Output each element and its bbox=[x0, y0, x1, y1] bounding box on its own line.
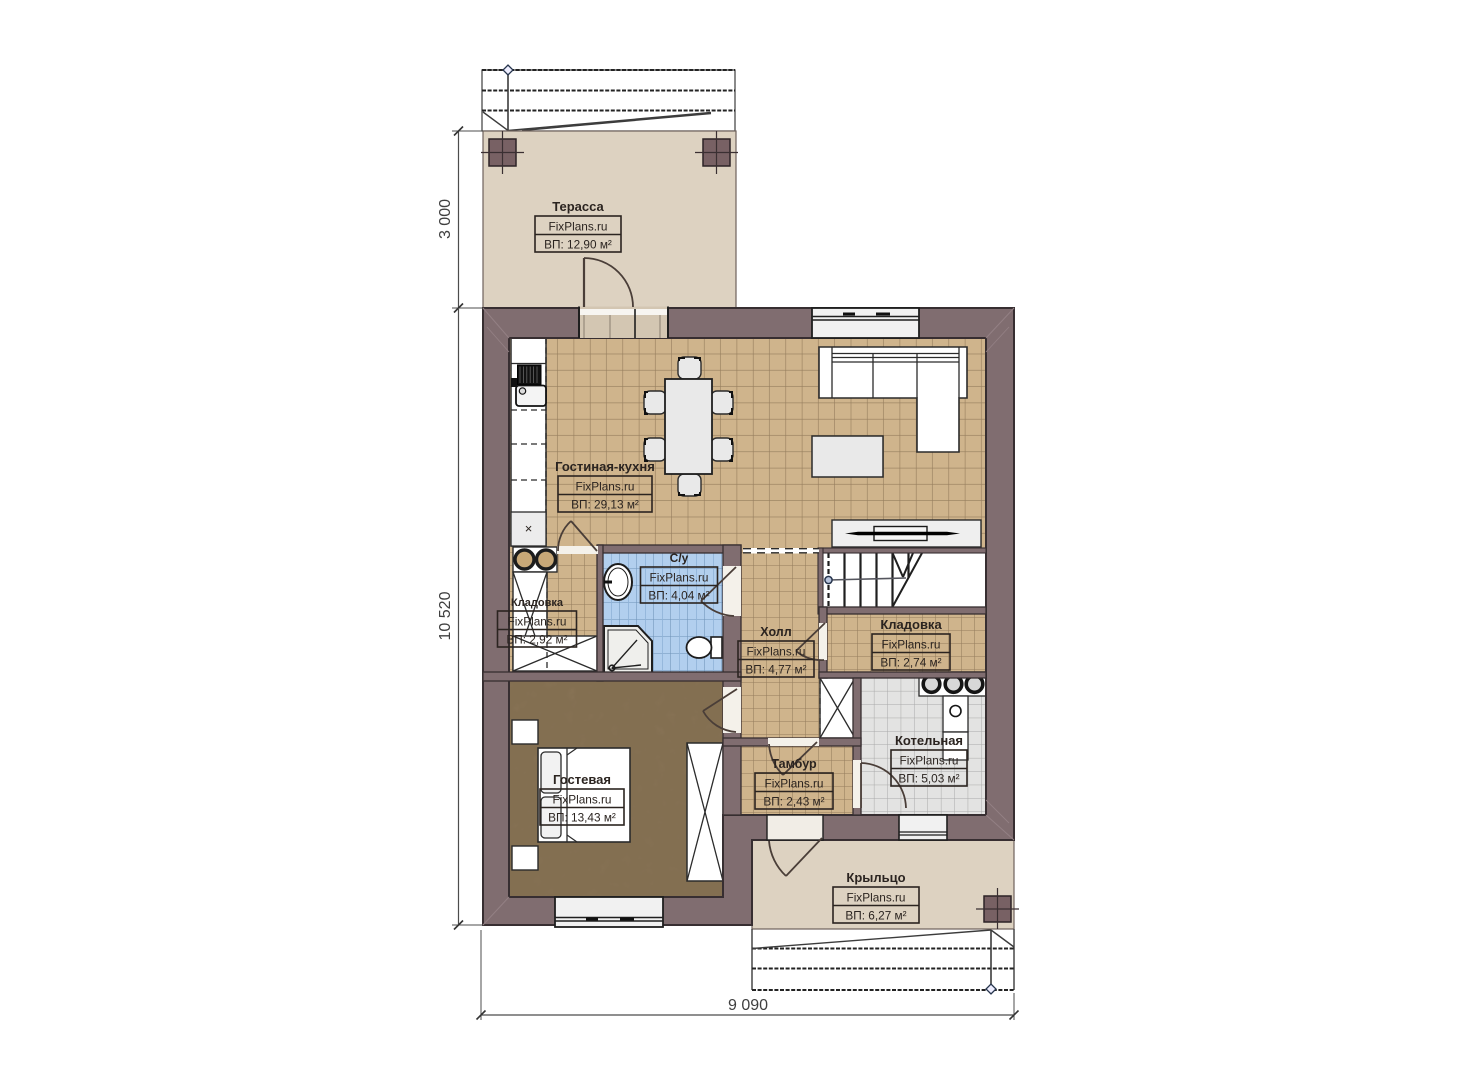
svg-text:Кладовка: Кладовка bbox=[511, 597, 564, 609]
svg-text:ВП: 12,90 м²: ВП: 12,90 м² bbox=[544, 238, 612, 252]
svg-text:ВП: 2,74 м²: ВП: 2,74 м² bbox=[880, 656, 941, 670]
svg-text:Гостиная-кухня: Гостиная-кухня bbox=[555, 459, 655, 474]
svg-text:Крыльцо: Крыльцо bbox=[846, 870, 905, 885]
svg-text:Котельная: Котельная bbox=[895, 733, 963, 748]
svg-text:FixPlans.ru: FixPlans.ru bbox=[881, 638, 940, 652]
svg-text:Тамбур: Тамбур bbox=[771, 757, 817, 771]
svg-text:×: × bbox=[525, 521, 533, 536]
svg-text:ВП: 4,77 м²: ВП: 4,77 м² bbox=[745, 663, 806, 677]
svg-text:9 090: 9 090 bbox=[728, 997, 768, 1014]
svg-text:FixPlans.ru: FixPlans.ru bbox=[552, 793, 611, 807]
svg-text:С/у: С/у bbox=[670, 551, 689, 565]
svg-text:FixPlans.ru: FixPlans.ru bbox=[575, 480, 634, 494]
svg-text:Кладовка: Кладовка bbox=[880, 617, 942, 632]
svg-text:ВП: 6,27 м²: ВП: 6,27 м² bbox=[845, 909, 906, 923]
svg-text:FixPlans.ru: FixPlans.ru bbox=[899, 754, 958, 768]
svg-text:Холл: Холл bbox=[760, 625, 791, 639]
svg-text:FixPlans.ru: FixPlans.ru bbox=[507, 615, 566, 629]
svg-text:ВП: 2,92 м²: ВП: 2,92 м² bbox=[506, 633, 567, 647]
svg-text:10 520: 10 520 bbox=[437, 591, 454, 640]
svg-text:FixPlans.ru: FixPlans.ru bbox=[649, 571, 708, 585]
svg-text:FixPlans.ru: FixPlans.ru bbox=[846, 891, 905, 905]
svg-text:ВП: 29,13 м²: ВП: 29,13 м² bbox=[571, 498, 639, 512]
svg-text:ВП: 13,43 м²: ВП: 13,43 м² bbox=[548, 811, 616, 825]
svg-text:Гостевая: Гостевая bbox=[553, 772, 611, 787]
svg-text:FixPlans.ru: FixPlans.ru bbox=[746, 645, 805, 659]
svg-text:FixPlans.ru: FixPlans.ru bbox=[764, 777, 823, 791]
svg-text:ВП: 5,03 м²: ВП: 5,03 м² bbox=[898, 772, 959, 786]
svg-text:ВП: 4,04 м²: ВП: 4,04 м² bbox=[648, 589, 709, 603]
svg-text:ВП: 2,43 м²: ВП: 2,43 м² bbox=[763, 795, 824, 809]
svg-text:3 000: 3 000 bbox=[437, 199, 454, 239]
svg-text:FixPlans.ru: FixPlans.ru bbox=[548, 220, 607, 234]
svg-text:Терасса: Терасса bbox=[552, 199, 604, 214]
